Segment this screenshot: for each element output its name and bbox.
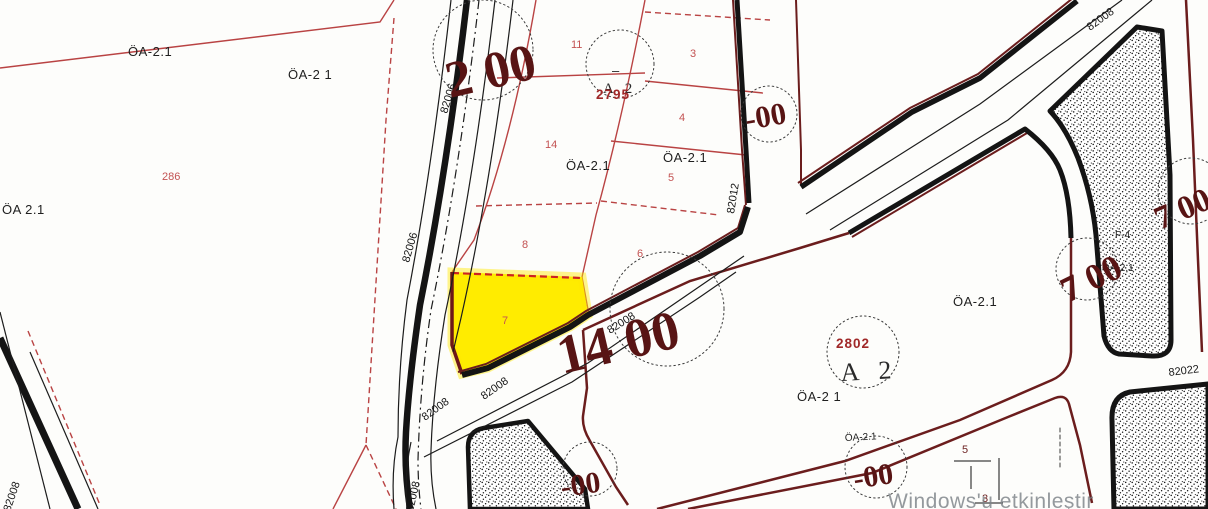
road-label: 82006 — [400, 231, 420, 264]
parcel-number: 8 — [522, 239, 528, 251]
boundary-line-dashed — [601, 201, 719, 215]
parcel-number: 5 — [668, 172, 674, 184]
parcel-number: 14 — [545, 139, 557, 151]
survey-number: -00 — [742, 95, 789, 137]
block-id: 2802 — [836, 336, 870, 351]
zone-label: ÖA 2.1 — [2, 202, 45, 217]
zone-label: ÖA-2.1 — [566, 158, 610, 173]
zone-a2-label: A 2 — [840, 355, 899, 387]
parcel-number: 286 — [162, 171, 180, 183]
parcel-number: 11 — [571, 39, 582, 51]
zone-label: ÖA-2.1 — [953, 294, 997, 309]
map-layers: ÖA-2.1 ÖA-2 1 ÖA 2.1 ÖA-2.1 ÖA-2.1 ÖA-2.… — [0, 0, 1208, 509]
dash-mark: – — [612, 63, 620, 78]
parcel-number: 6 — [637, 248, 643, 260]
boundary-line — [645, 81, 763, 93]
zone-label: F-4 — [1115, 230, 1130, 241]
road-label: 82022 — [1168, 363, 1200, 379]
parcel-number: 3 — [690, 48, 696, 60]
block-id: 2795 — [596, 87, 630, 102]
road-label: 82008 — [420, 396, 452, 424]
parcel-number: 5 — [962, 444, 968, 456]
boundary-line-dashed — [476, 203, 597, 206]
boundary-line-dashed — [645, 12, 770, 20]
road-82012-east-maroon — [796, 0, 801, 185]
road-label: 82008 — [1085, 6, 1117, 34]
parcel-boundaries-red — [0, 0, 770, 509]
parcel-number-highlighted: 7 — [502, 315, 508, 327]
survey-number: 2 00 — [440, 34, 541, 110]
cadastral-map-canvas[interactable]: ÖA-2.1 ÖA-2 1 ÖA 2.1 ÖA-2.1 ÖA-2.1 ÖA-2.… — [0, 0, 1208, 509]
boundary-line — [0, 0, 394, 68]
zone-label: ÖA-2 1 — [288, 67, 332, 82]
survey-number: -00 — [558, 466, 602, 504]
zone-label: ÖA-2.1 — [663, 150, 707, 165]
boundary-line-dashed — [366, 18, 394, 445]
map-labels: ÖA-2.1 ÖA-2 1 ÖA 2.1 ÖA-2.1 ÖA-2.1 ÖA-2.… — [1, 6, 1208, 509]
road-label: 82008 — [1, 480, 22, 509]
boundary-line — [333, 445, 366, 509]
boundary-line — [582, 0, 645, 277]
lane-line — [0, 312, 50, 509]
zone-label: ÖA-2.1 — [128, 44, 172, 59]
road-82008-ne-maroon — [798, 0, 1073, 183]
road-label: 82012 — [725, 182, 742, 214]
stippled-parcel-bottom-right — [1112, 384, 1208, 509]
road-label: 82008 — [479, 375, 511, 402]
road-right-edge-maroon — [1186, 0, 1202, 352]
zone-boundary-east — [657, 129, 1071, 509]
road-82008-se-maroon — [852, 133, 1027, 237]
zone-label: ÖA-2 1 — [797, 389, 841, 404]
parcel-number: 4 — [679, 112, 685, 124]
road-82008-se-casing — [849, 129, 1071, 238]
zone-label: ÖA-2.1 — [845, 430, 878, 444]
boundary-line-dashed — [366, 445, 396, 509]
activate-windows-watermark: Windows'u etkinleştir — [888, 490, 1094, 509]
